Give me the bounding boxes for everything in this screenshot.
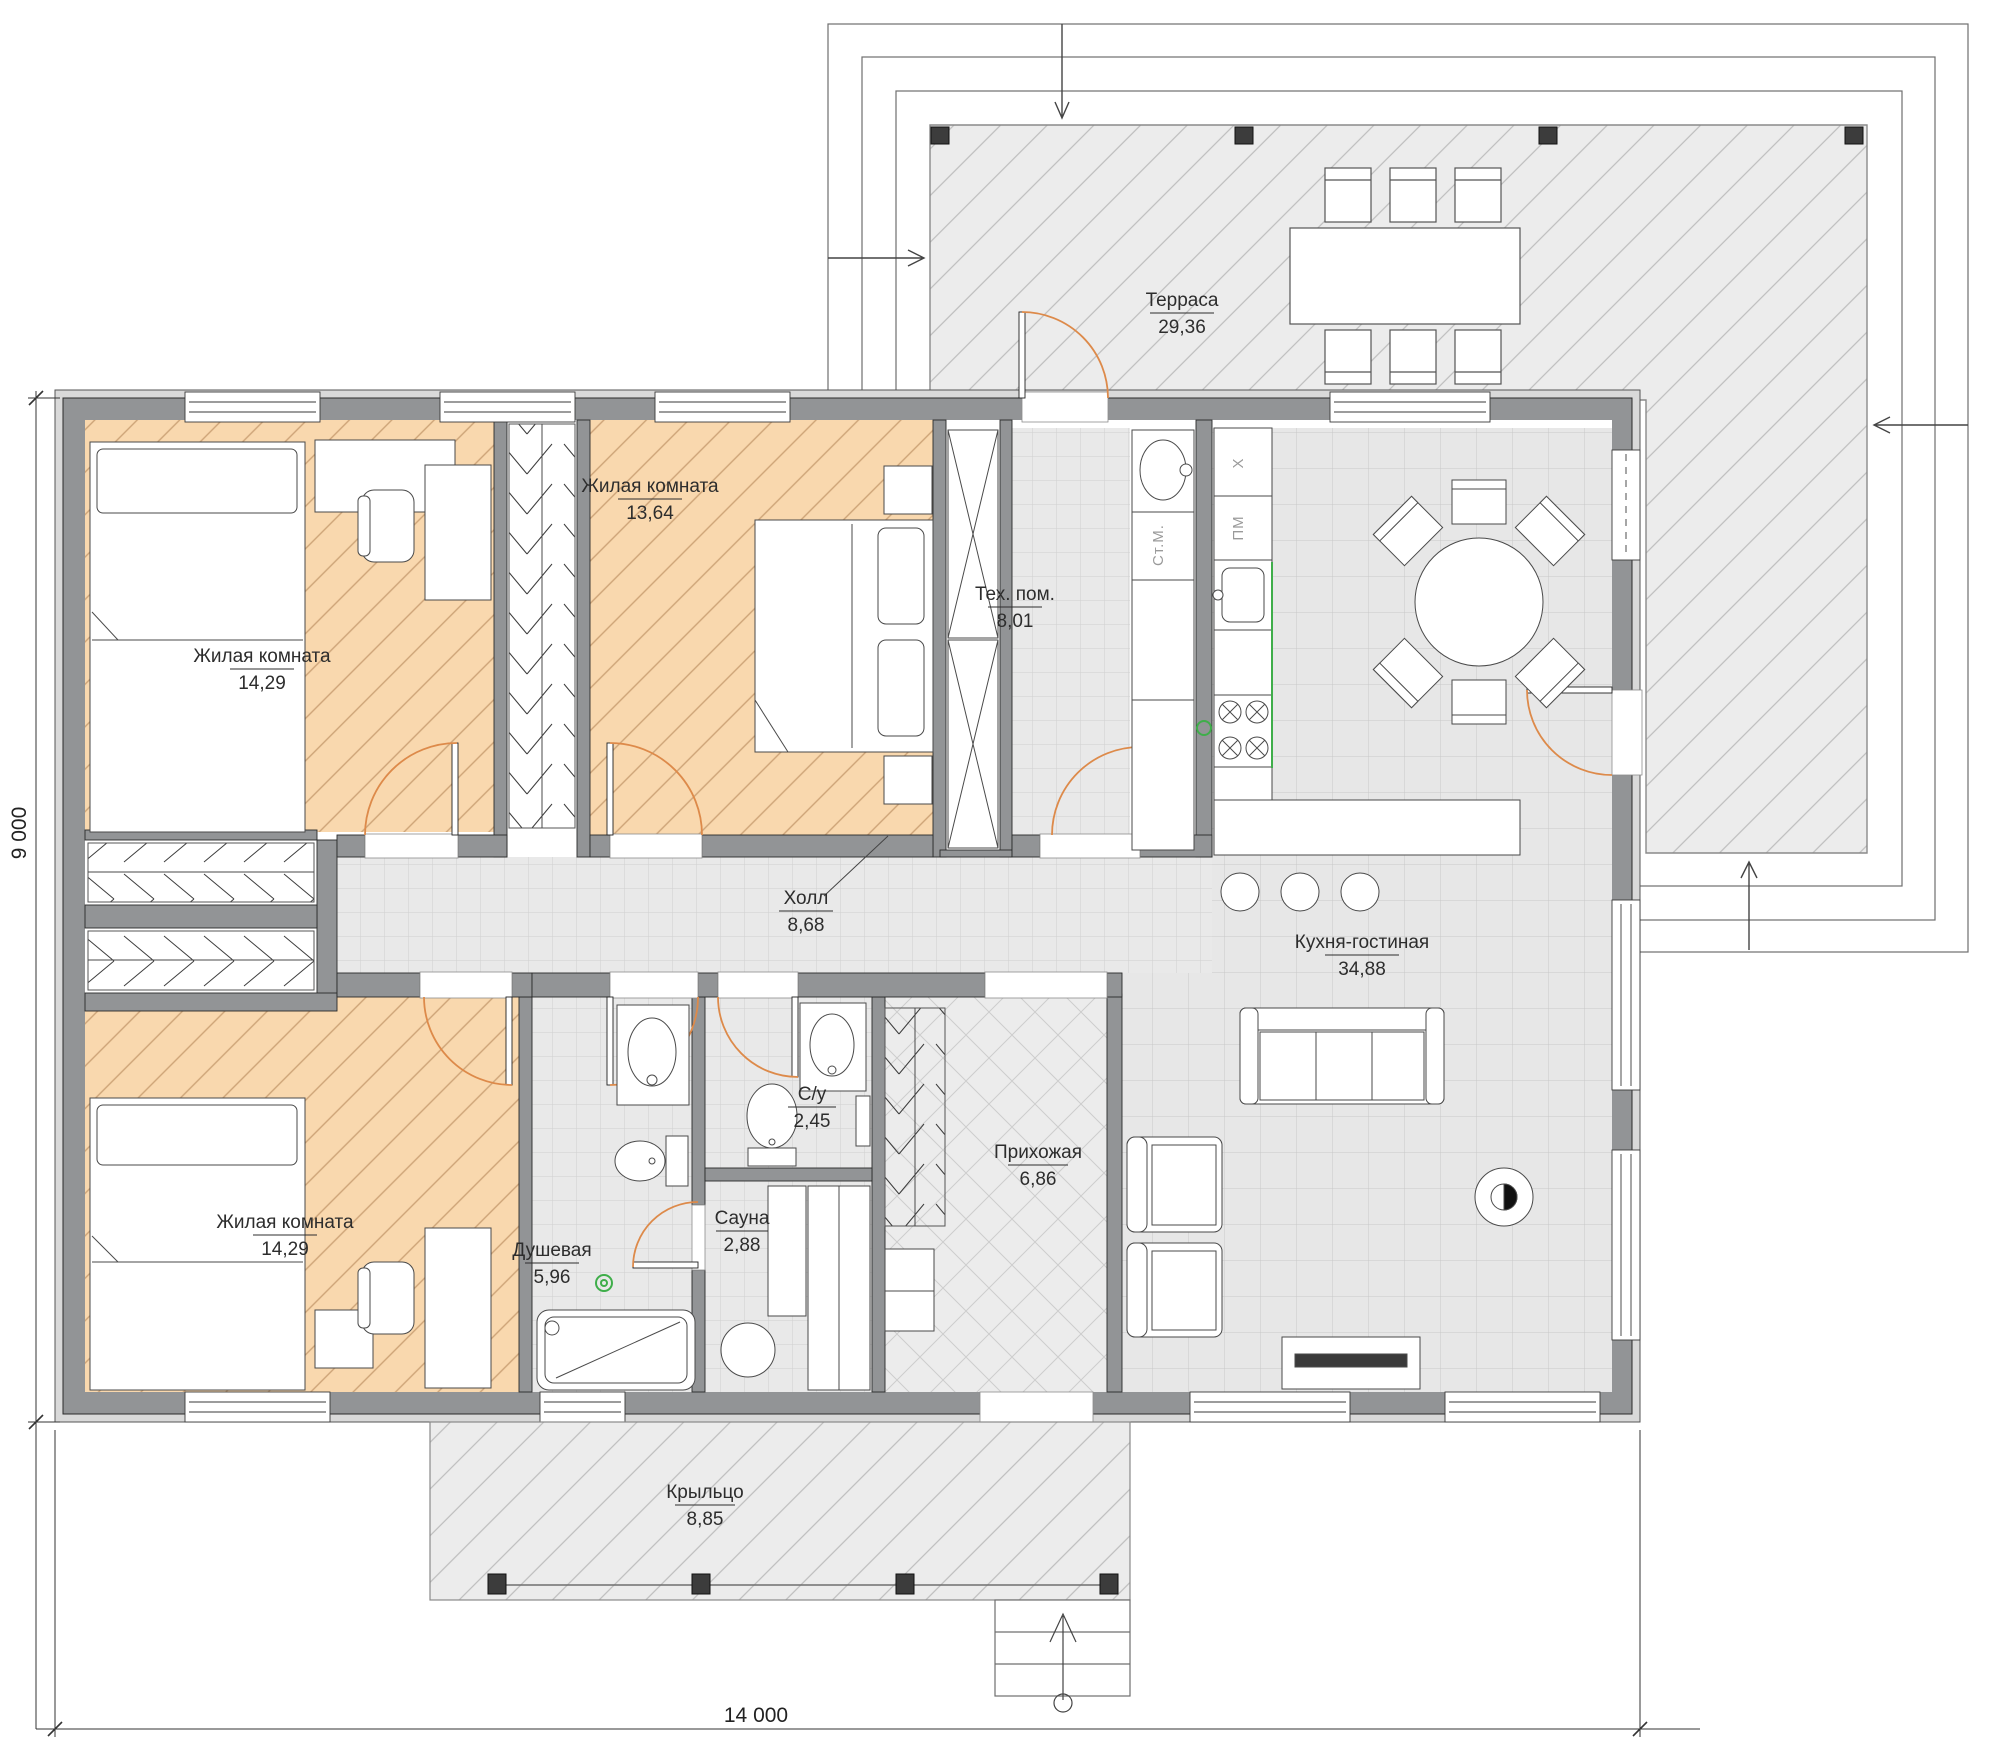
room-name: С/у: [798, 1084, 827, 1105]
terrace-table: [1290, 228, 1520, 324]
floor-plan-svg: Терраса 29,36 Жилая комната 14,29 Жилая …: [0, 0, 1996, 1752]
toilet: [747, 1084, 797, 1166]
tech-floor: [1012, 428, 1130, 852]
pillow: [97, 449, 297, 513]
room-name: Кухня-гостиная: [1295, 932, 1429, 953]
window-right-2: [1612, 900, 1640, 1090]
terrace-dining-set: [1290, 168, 1520, 384]
armchair: [1127, 1137, 1222, 1232]
window-bottom-shower: [540, 1392, 625, 1422]
room-name: Жилая комната: [581, 476, 719, 497]
room-area: 8,85: [687, 1509, 724, 1530]
window-bottom-bedroom3: [185, 1392, 330, 1422]
tech-appliances: [1132, 430, 1194, 850]
pillow: [878, 528, 924, 624]
bar-stools: [1221, 873, 1379, 911]
room-area: 34,88: [1338, 959, 1386, 980]
window-right-3: [1612, 1150, 1640, 1340]
dim-height: 9 000: [8, 807, 31, 860]
room-name: Крыльцо: [666, 1482, 744, 1503]
tech-sink: [1140, 440, 1186, 500]
room-area: 8,68: [788, 915, 825, 936]
towel-radiator: [856, 1096, 870, 1146]
window-top-kitchen: [1330, 392, 1490, 422]
desk: [425, 1228, 491, 1388]
wardrobe-strip-b1b2: [509, 424, 575, 828]
pillow: [878, 640, 924, 736]
round-table: [1415, 538, 1543, 666]
porch-deck: [430, 1422, 1130, 1600]
hall-floor: [337, 857, 1212, 973]
tv-console: [1282, 1337, 1420, 1389]
window-right-1: [1612, 450, 1640, 560]
room-name: Терраса: [1146, 290, 1219, 311]
shoe-bench: [885, 1249, 934, 1291]
room-area: 6,86: [1020, 1169, 1057, 1190]
sauna-stove: [721, 1323, 775, 1377]
desk: [425, 465, 491, 600]
nightstand: [884, 756, 932, 804]
room-area: 29,36: [1158, 317, 1206, 338]
pillow: [97, 1105, 297, 1165]
room-area: 5,96: [534, 1267, 571, 1288]
room-name: Холл: [784, 888, 829, 909]
porch-area: [430, 1422, 1130, 1712]
kitchen-sink: [1222, 568, 1264, 622]
washing-machine-label: Ст.М.: [1150, 524, 1167, 566]
armchair: [1127, 1243, 1222, 1337]
window-bottom-living-2: [1445, 1392, 1600, 1422]
tech-cabinet: [1132, 580, 1194, 850]
porch-steps: [995, 1600, 1130, 1712]
window-top-1: [185, 392, 320, 422]
room-area: 8,01: [997, 611, 1034, 632]
room-area: 14,29: [238, 673, 286, 694]
room-area: 2,88: [724, 1235, 761, 1256]
fridge-label: Х: [1230, 457, 1247, 468]
room-name: Душевая: [512, 1240, 591, 1261]
bathtub: [537, 1310, 695, 1390]
window-bottom-living-1: [1190, 1392, 1350, 1422]
closetA: [88, 843, 314, 902]
room-name: Сауна: [715, 1208, 770, 1229]
window-top-2: [440, 392, 575, 422]
bench: [768, 1186, 806, 1316]
sofa: [1240, 1008, 1444, 1104]
nightstand: [884, 466, 932, 514]
window-top-3: [655, 392, 790, 422]
kitchen-island: [1214, 800, 1520, 855]
room-name: Прихожая: [994, 1142, 1082, 1163]
room-area: 2,45: [794, 1111, 831, 1132]
floor-lamp: [1475, 1168, 1533, 1226]
room-name: Жилая комната: [216, 1212, 354, 1233]
dim-width: 14 000: [724, 1704, 788, 1727]
floor-plan-page: Терраса 29,36 Жилая комната 14,29 Жилая …: [0, 0, 1996, 1752]
closetB: [88, 931, 314, 990]
room-area: 13,64: [626, 503, 674, 524]
shoe-bench: [885, 1291, 934, 1331]
dishwasher-label: ПМ: [1230, 515, 1247, 540]
room-area: 14,29: [261, 1239, 309, 1260]
room-name: Тех. пом.: [975, 584, 1055, 605]
room-name: Жилая комната: [193, 646, 331, 667]
